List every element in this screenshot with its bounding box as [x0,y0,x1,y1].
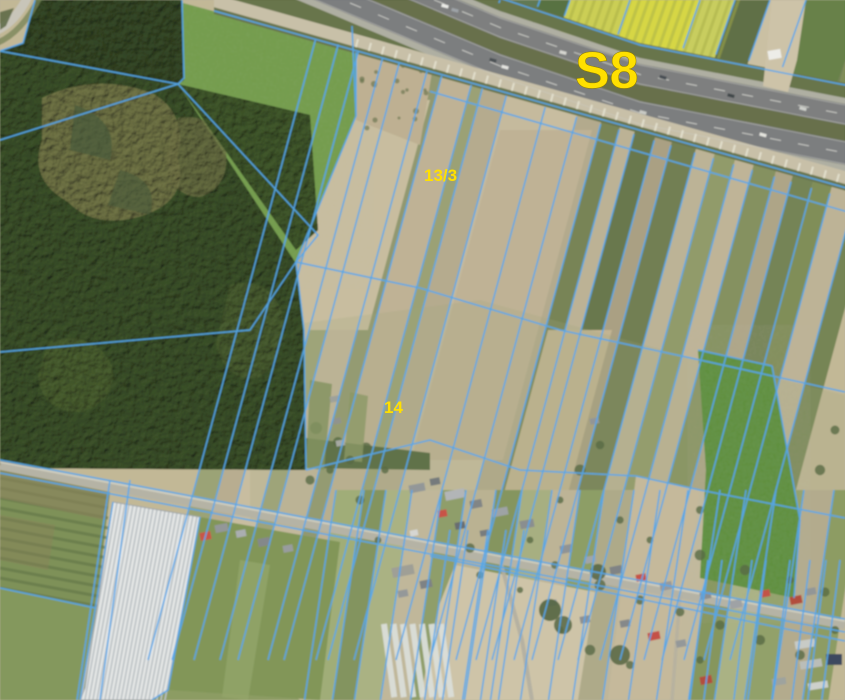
svg-text:14: 14 [384,398,403,417]
svg-text:S8: S8 [575,42,639,100]
svg-text:13/3: 13/3 [424,166,457,185]
